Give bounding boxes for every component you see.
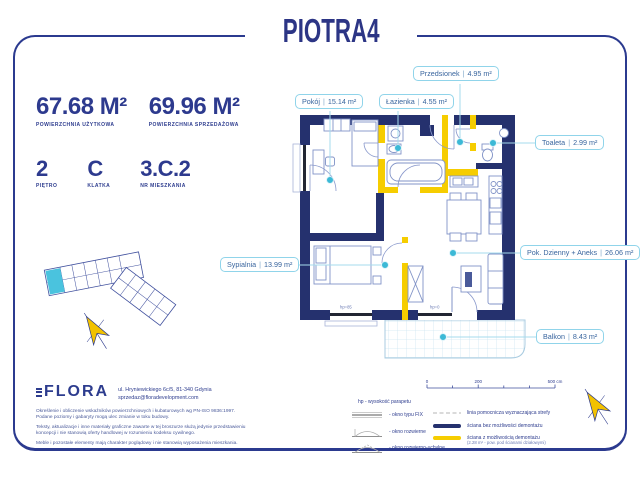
dashed-line-icon [432,409,462,417]
disclaimer-3: Meble i pozostałe elementy mają charakte… [36,441,250,447]
legend-item-fixed-wall: ściana bez możliwości demontażu [432,422,550,430]
north-arrow-icon [574,386,618,431]
legend-walls: linia pomocnicza wyznaczająca strefy ści… [432,409,550,445]
window-fix-icon [350,409,384,421]
bathtub [387,160,445,184]
legend-item-fix: - okno typu FIX [350,409,445,421]
scale-bar: 0 200 500 cm [424,377,569,393]
developer-block: FLORA ul. Hryniewickiego 6c/5, 81-340 Gd… [36,383,212,402]
parapet-note-2: hp=0 [430,305,440,310]
wardrobe-pokoj [324,119,350,131]
flora-logo-stripes-icon [36,388,42,397]
room-label-balkon: Balkon|8.43 m² [536,329,604,344]
usable-area-block: 67.68 M² POWIERZCHNIA UŻYTKOWA [36,95,127,128]
legend-item-casement: - okno rozwierne [350,426,445,438]
usable-area-value: 67.68 [36,93,94,120]
apartment-number-block: 3.C.2 NR MIESZKANIA [140,158,190,189]
apartment-attributes: 2 PIĘTRO C KLATKA 3.C.2 NR MIESZKANIA [36,158,190,189]
room-label-lazienka: Łazienka|4.55 m² [379,94,454,109]
north-arrow-icon [73,306,117,355]
floor-value: 2 [36,158,57,180]
room-label-przedsionek: Przedsionek|4.95 m² [413,66,499,81]
dining-table-chairs [447,193,481,241]
sofa [488,254,503,304]
developer-address: ul. Hryniewickiego 6c/5, 81-340 Gdynia [118,386,212,394]
toilet-sink [500,129,509,138]
tv-stand [461,266,481,292]
scale-tick-500: 500 cm [548,379,563,384]
disclaimer-1: Określenie i obliczenie wskaźników powie… [36,409,250,421]
floor-label: PIĘTRO [36,183,57,189]
navy-wall-icon [432,422,462,430]
scale-tick-200: 200 [474,379,482,384]
usable-area-label: POWIERZCHNIA UŻYTKOWA [36,122,127,128]
legend-item-helper-line: linia pomocnicza wyznaczająca strefy [432,409,550,417]
sales-area-label: POWIERZCHNIA SPRZEDAŻOWA [149,122,240,128]
sales-area-value: 69.96 [149,93,207,120]
toilet-wc [482,144,493,161]
brochure-page: PIOTRA4 67.68 M² POWIERZCHNIA UŻYTKOWA 6… [0,0,640,480]
balcony-terrace [385,320,525,358]
brand-logo: PIOTRA4 [245,13,417,49]
disclaimer-2: Teksty, aktualizacje i inne materiały gr… [36,425,250,437]
building-outline [44,252,175,326]
wardrobe-hall [408,266,423,302]
staircase-label: KLATKA [87,183,110,189]
parapet-note-1: hp=85 [340,305,352,310]
sales-area-block: 69.96 M² POWIERZCHNIA SPRZEDAŻOWA [149,95,240,128]
legend-windows: - okno typu FIX - okno rozwierne - okno … [350,409,445,459]
scale-tick-0: 0 [426,379,429,384]
legend-item-tilt: - okno rozwierno-uchylne [350,442,445,454]
yellow-wall-icon [432,434,462,442]
window-tilt-icon [350,442,384,454]
staircase-value: C [87,158,110,180]
developer-name: FLORA [44,383,109,401]
developer-logo: FLORA [36,383,109,401]
compass [566,386,618,442]
brand-logo-text: PIOTRA4 [283,12,380,51]
room-label-toaleta: Toaleta|2.99 m² [535,135,604,150]
room-label-pok-dzienny: Pok. Dzienny + Aneks|26.06 m² [520,245,640,260]
developer-contact: ul. Hryniewickiego 6c/5, 81-340 Gdynia s… [118,383,212,402]
developer-email[interactable]: sprzedaz@floradevelopment.com [118,394,212,402]
apartment-number-label: NR MIESZKANIA [140,183,190,189]
window-casement-icon [350,426,384,438]
building-key-plan [28,236,178,361]
room-label-pokoj: Pokój|15.14 m² [295,94,363,109]
disclaimers: Określenie i obliczenie wskaźników powie… [36,409,250,451]
sales-area-unit: M² [212,93,239,120]
legend-demountable-note: (2.28 m² - pow. pod ścianami działowymi) [467,440,550,445]
washing-machine [388,126,403,141]
apartment-number-value: 3.C.2 [140,158,190,180]
desk-chair [313,150,335,174]
room-label-sypialnia: Sypialnia|13.99 m² [220,257,299,272]
usable-area-unit: M² [100,93,127,120]
staircase-block: C KLATKA [87,158,110,189]
legend-hp-note: hp - wysokość parapetu [358,399,411,405]
area-summary: 67.68 M² POWIERZCHNIA UŻYTKOWA 69.96 M² … [36,95,239,128]
floor-block: 2 PIĘTRO [36,158,57,189]
